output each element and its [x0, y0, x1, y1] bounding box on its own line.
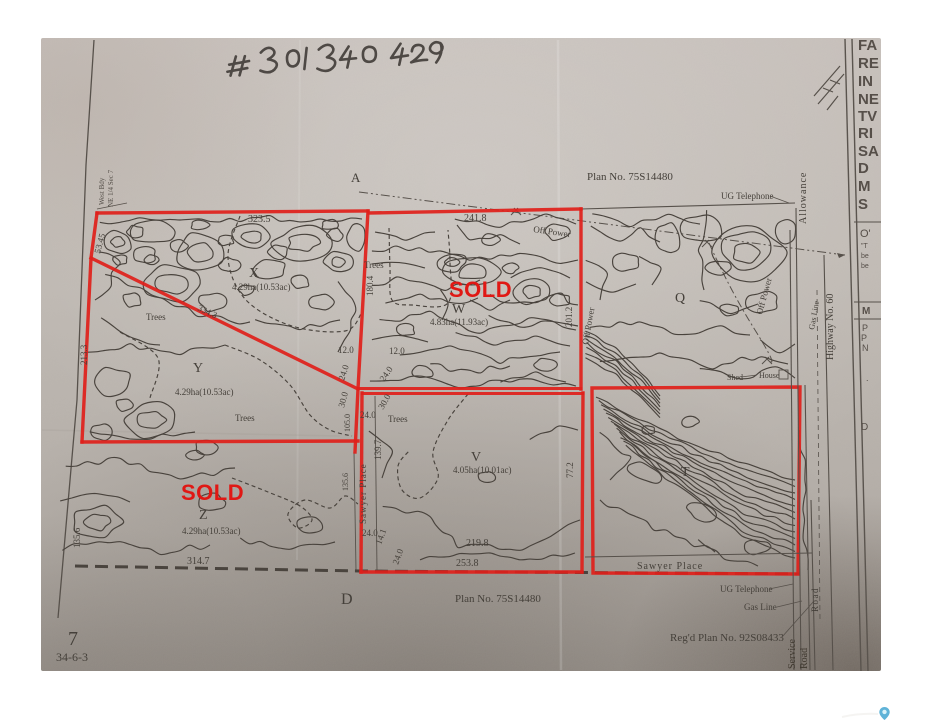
- svg-text:Trees: Trees: [388, 414, 408, 424]
- svg-text:323.5: 323.5: [248, 214, 271, 225]
- svg-text:Q: Q: [675, 291, 685, 306]
- svg-text:Trees: Trees: [235, 413, 255, 423]
- svg-text:D: D: [858, 160, 869, 177]
- svg-text:.: .: [866, 373, 869, 383]
- svg-text:N: N: [862, 343, 869, 353]
- svg-text:West Bdy: West Bdy: [98, 177, 106, 205]
- svg-text:UG Telephone: UG Telephone: [720, 584, 772, 594]
- svg-text:Trees: Trees: [146, 312, 166, 322]
- svg-text:180.4: 180.4: [365, 275, 375, 296]
- svg-text:Allowance: Allowance: [798, 172, 809, 224]
- svg-text:P: P: [862, 323, 868, 333]
- svg-text:Shed: Shed: [727, 373, 743, 382]
- svg-text:M: M: [862, 306, 870, 317]
- svg-text:12.0: 12.0: [389, 346, 405, 356]
- svg-text:139.7: 139.7: [373, 439, 383, 460]
- svg-text:7: 7: [68, 628, 78, 650]
- svg-text:Plan No. 75S14480: Plan No. 75S14480: [455, 593, 541, 605]
- svg-text:Reg'd Plan No. 92S08433: Reg'd Plan No. 92S08433: [670, 632, 784, 644]
- svg-text:213.3: 213.3: [79, 344, 89, 365]
- svg-text:T: T: [681, 465, 690, 480]
- svg-text:4.05ha(10.01ac): 4.05ha(10.01ac): [453, 465, 511, 475]
- svg-text:A: A: [351, 170, 361, 185]
- svg-text:135.6: 135.6: [72, 527, 82, 548]
- svg-text:be: be: [861, 263, 869, 270]
- svg-text:P: P: [861, 333, 867, 343]
- svg-text:4.83ha(11.93ac): 4.83ha(11.93ac): [430, 317, 488, 327]
- svg-text:Road: Road: [799, 648, 810, 669]
- svg-text:34-6-3: 34-6-3: [56, 650, 88, 664]
- svg-text:Road: Road: [810, 587, 820, 612]
- svg-text:4.29ha(10.53ac): 4.29ha(10.53ac): [175, 387, 233, 397]
- svg-text:O': O': [860, 228, 871, 240]
- svg-text:SA: SA: [858, 143, 879, 160]
- svg-text:UG Telephone: UG Telephone: [721, 191, 773, 201]
- svg-text:Z: Z: [199, 508, 208, 523]
- svg-text:219.8: 219.8: [466, 538, 489, 549]
- svg-text:RE: RE: [858, 55, 879, 72]
- svg-text:24.0: 24.0: [360, 410, 376, 420]
- svg-text:W: W: [452, 302, 466, 317]
- svg-text:Sawyer Place: Sawyer Place: [637, 561, 703, 572]
- svg-text:RI: RI: [858, 125, 873, 142]
- svg-text:12.0: 12.0: [338, 345, 354, 355]
- svg-text:Sawyer Place: Sawyer Place: [358, 463, 368, 524]
- svg-text:Highway No. 60: Highway No. 60: [825, 294, 836, 360]
- svg-text:4.29ha(10.53ac): 4.29ha(10.53ac): [232, 282, 290, 292]
- svg-text:135.6: 135.6: [341, 473, 350, 491]
- svg-text:Plan No. 75S14480: Plan No. 75S14480: [587, 171, 673, 183]
- svg-text:SOLD: SOLD: [449, 277, 512, 302]
- svg-text:IN: IN: [858, 73, 873, 90]
- svg-text:be: be: [861, 253, 869, 260]
- svg-text:D: D: [861, 422, 868, 433]
- svg-text:SOLD: SOLD: [181, 480, 244, 505]
- svg-text:"T: "T: [861, 243, 868, 250]
- svg-text:Trees: Trees: [364, 260, 384, 270]
- svg-text:Y: Y: [193, 361, 203, 376]
- svg-text:253.8: 253.8: [456, 558, 479, 569]
- svg-text:M: M: [858, 178, 871, 195]
- svg-text:S: S: [858, 196, 868, 213]
- svg-text:Gas Line: Gas Line: [744, 602, 777, 612]
- svg-text:D: D: [341, 591, 353, 608]
- svg-text:House: House: [759, 371, 780, 380]
- svg-text:NE 1/4 Sec 7: NE 1/4 Sec 7: [107, 169, 115, 207]
- svg-text:NE: NE: [858, 91, 879, 108]
- svg-text:V: V: [471, 450, 481, 465]
- svg-text:TV: TV: [858, 108, 877, 125]
- svg-text:77.2: 77.2: [565, 462, 575, 478]
- svg-text:Service: Service: [787, 638, 798, 669]
- svg-text:201.2: 201.2: [564, 307, 574, 327]
- svg-text:314.7: 314.7: [187, 556, 210, 567]
- svg-text:X: X: [249, 266, 259, 281]
- svg-text:4.29ha(10.53ac): 4.29ha(10.53ac): [182, 526, 240, 536]
- svg-text:241.8: 241.8: [464, 213, 487, 224]
- svg-text:105.0: 105.0: [343, 414, 352, 432]
- svg-text:FA: FA: [858, 37, 877, 54]
